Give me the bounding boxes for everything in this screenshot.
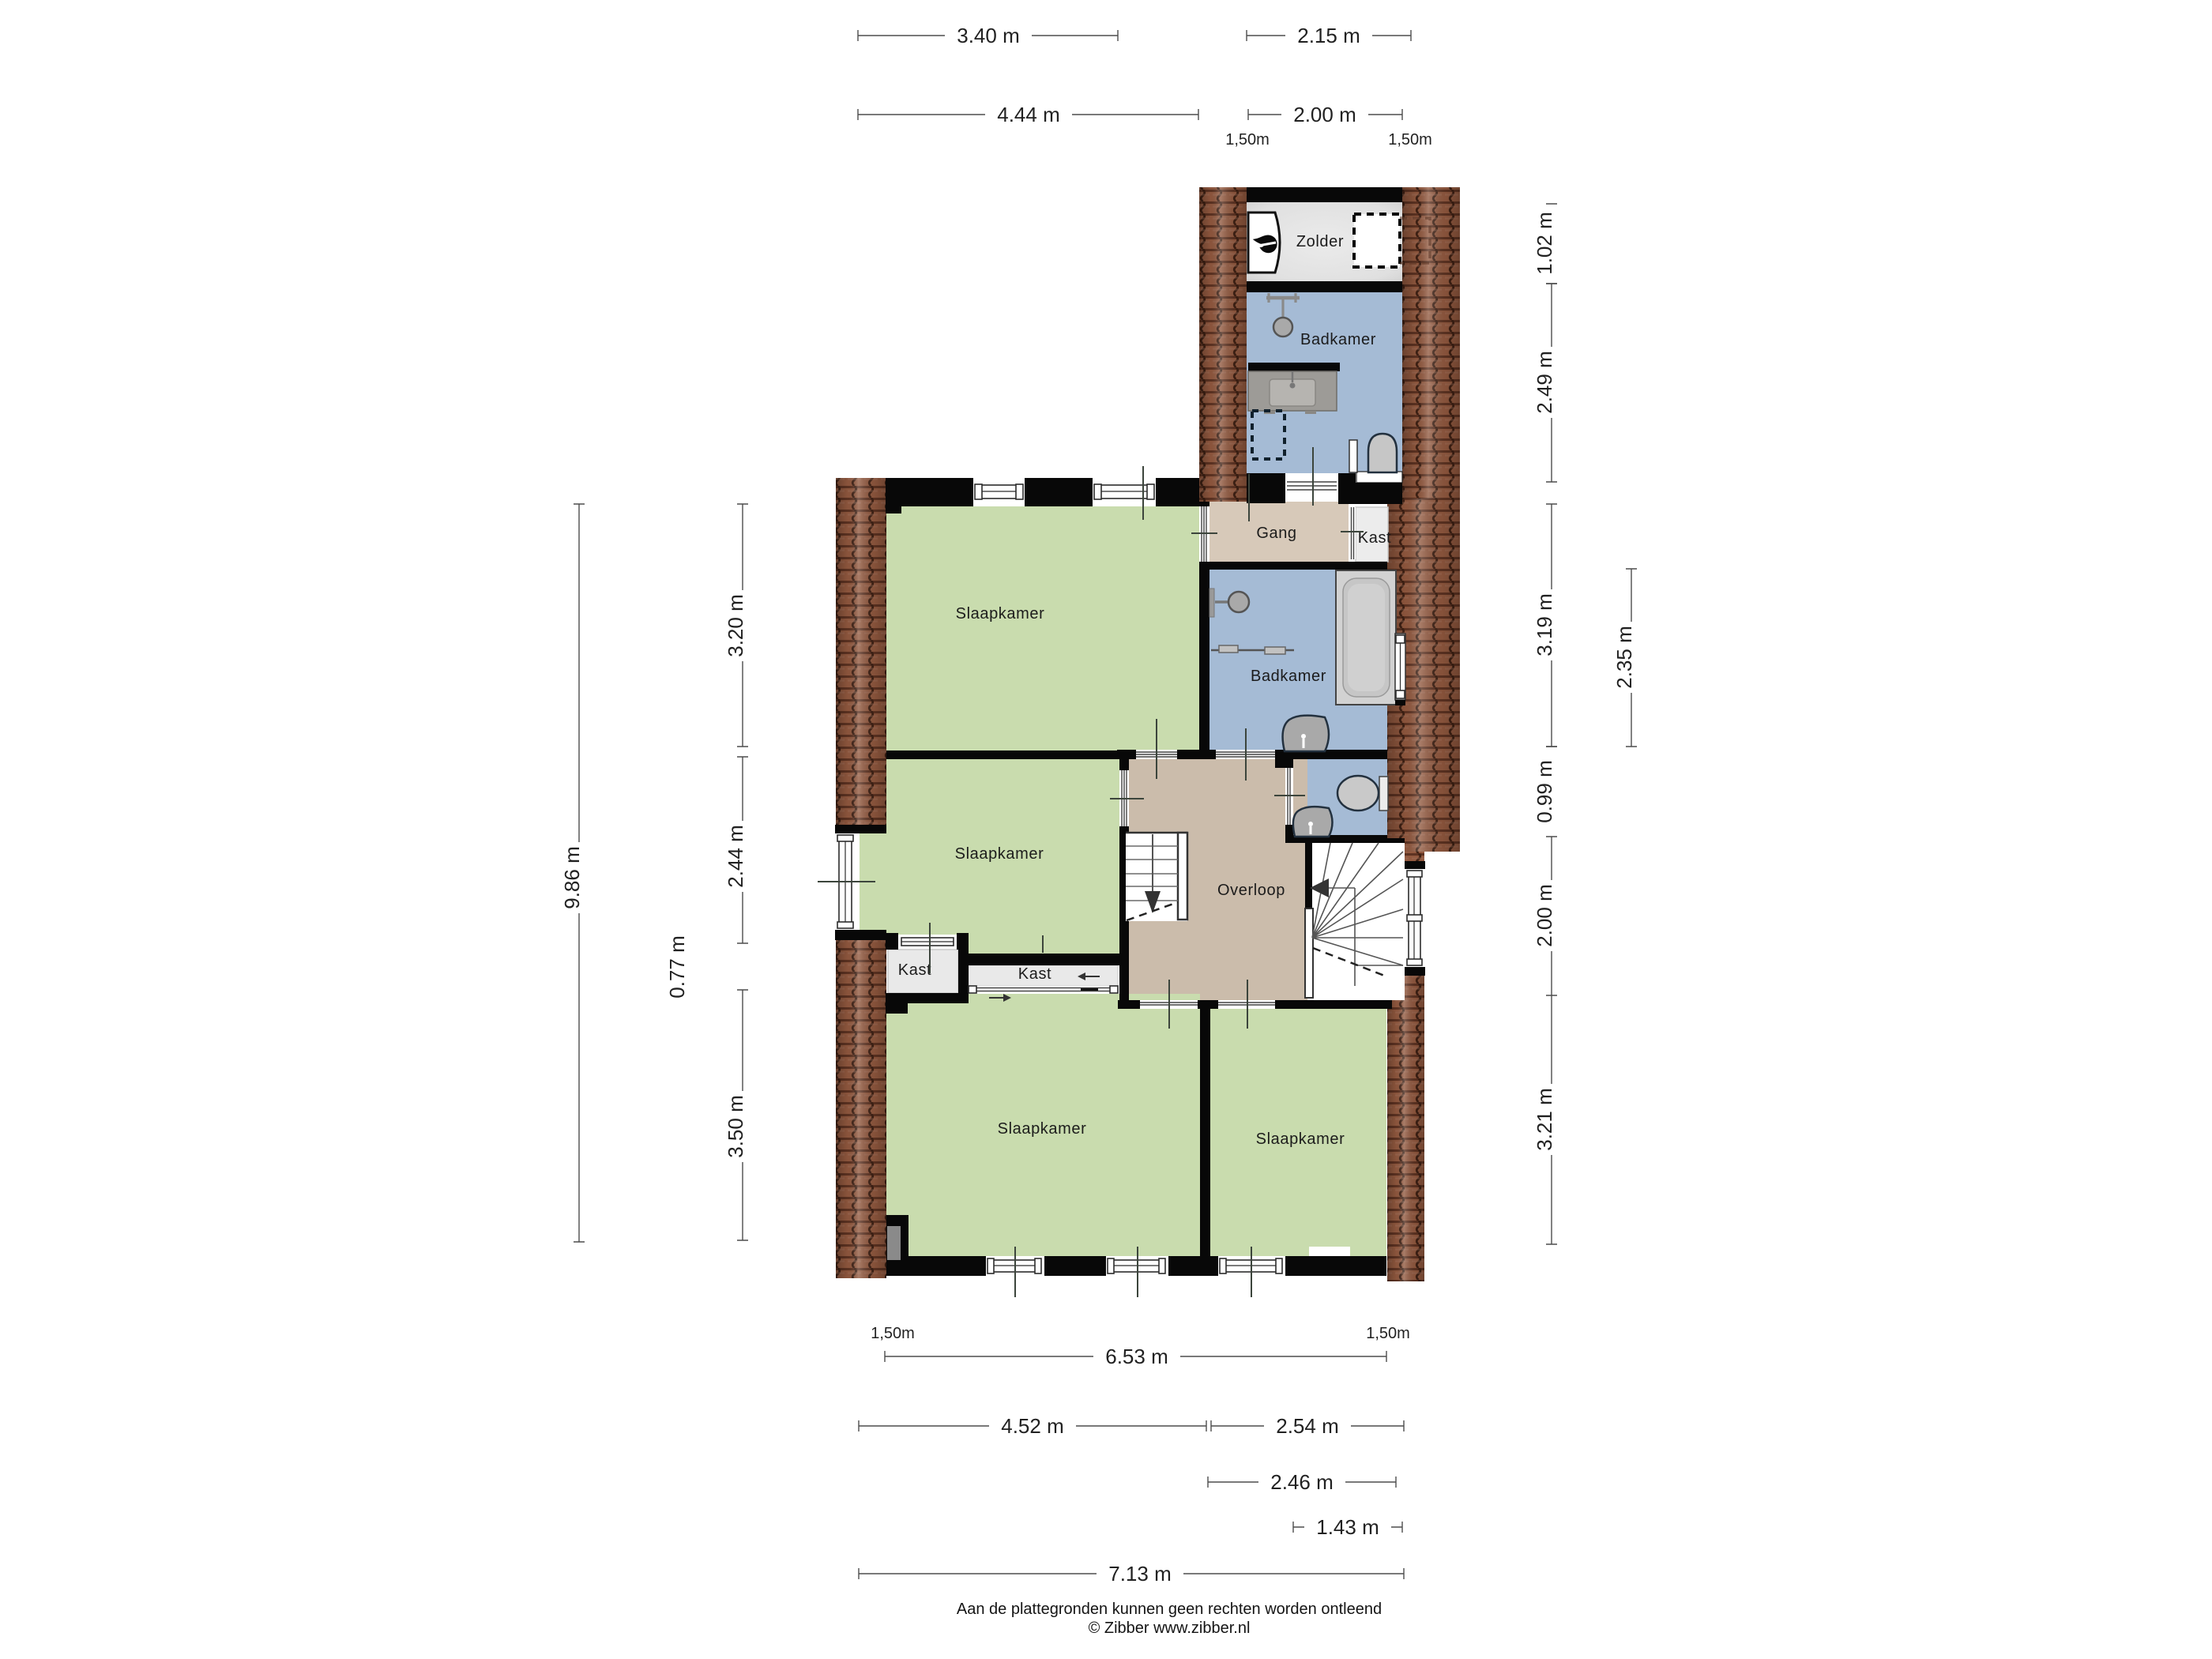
svg-text:3.40 m: 3.40 m [957,24,1020,47]
svg-text:Zolder: Zolder [1296,233,1344,250]
svg-text:Slaapkamer: Slaapkamer [998,1120,1087,1138]
svg-text:© Zibber www.zibber.nl: © Zibber www.zibber.nl [1089,1619,1251,1637]
svg-text:2.00 m: 2.00 m [1293,103,1356,126]
svg-text:2.46 m: 2.46 m [1270,1470,1334,1494]
svg-text:Kast: Kast [1018,965,1051,983]
svg-text:Kast: Kast [898,961,931,979]
svg-text:7.13 m: 7.13 m [1108,1562,1172,1586]
svg-text:3.21 m: 3.21 m [1533,1088,1556,1151]
svg-text:2.00 m: 2.00 m [1533,884,1556,947]
svg-text:1,50m: 1,50m [871,1325,915,1342]
svg-text:3.20 m: 3.20 m [724,594,747,657]
svg-text:3.50 m: 3.50 m [724,1095,747,1158]
svg-text:1,50m: 1,50m [1225,131,1270,149]
svg-text:2.35 m: 2.35 m [1612,626,1636,689]
svg-text:2.49 m: 2.49 m [1533,351,1556,414]
svg-text:Overloop: Overloop [1217,882,1285,899]
svg-text:1,50m: 1,50m [1366,1325,1410,1342]
svg-text:6.53 m: 6.53 m [1105,1345,1168,1368]
svg-text:4.52 m: 4.52 m [1001,1414,1064,1438]
svg-text:2.44 m: 2.44 m [724,825,747,888]
svg-text:Slaapkamer: Slaapkamer [956,605,1045,623]
svg-text:Badkamer: Badkamer [1300,331,1376,348]
svg-text:0.99 m: 0.99 m [1533,760,1556,823]
svg-text:0.77 m: 0.77 m [665,935,689,999]
svg-text:Gang: Gang [1256,525,1296,542]
svg-text:1,50m: 1,50m [1388,131,1432,149]
svg-text:Slaapkamer: Slaapkamer [955,845,1044,863]
svg-text:1.43 m: 1.43 m [1316,1515,1379,1539]
svg-text:2.15 m: 2.15 m [1297,24,1360,47]
svg-text:9.86 m: 9.86 m [560,846,584,909]
svg-text:3.19 m: 3.19 m [1533,593,1556,656]
svg-text:Aan de plattegronden kunnen ge: Aan de plattegronden kunnen geen rechten… [957,1601,1382,1618]
svg-text:1.02 m: 1.02 m [1533,212,1556,275]
svg-text:Badkamer: Badkamer [1251,668,1326,685]
svg-text:4.44 m: 4.44 m [997,103,1060,126]
svg-text:Slaapkamer: Slaapkamer [1256,1130,1345,1148]
svg-text:2.54 m: 2.54 m [1276,1414,1339,1438]
